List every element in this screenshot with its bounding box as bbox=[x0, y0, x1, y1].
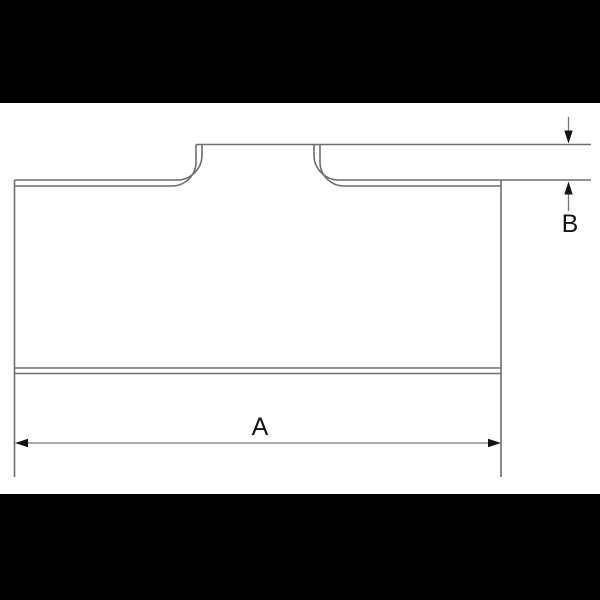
dimension-a-label: A bbox=[252, 413, 269, 441]
drawing-canvas: A B bbox=[0, 0, 600, 600]
top-letterbox-bar bbox=[0, 0, 600, 103]
bottom-letterbox-bar bbox=[0, 494, 600, 600]
tee-fitting-diagram: A B bbox=[0, 0, 600, 600]
dimension-b-label: B bbox=[562, 210, 579, 238]
